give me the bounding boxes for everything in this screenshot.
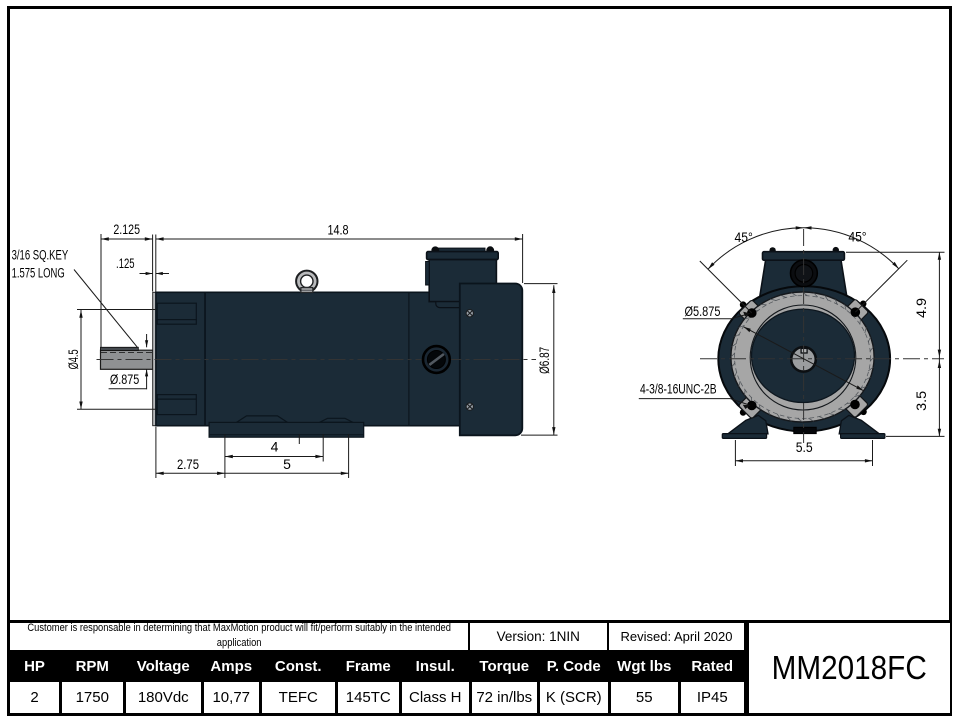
- svg-text:45°: 45°: [848, 228, 866, 244]
- svg-text:14.8: 14.8: [327, 221, 348, 237]
- svg-text:45°: 45°: [735, 229, 753, 245]
- svg-text:4-3/8-16UNC-2B: 4-3/8-16UNC-2B: [640, 381, 717, 397]
- svg-text:3/16 SQ.KEY: 3/16 SQ.KEY: [12, 247, 69, 262]
- svg-text:2.125: 2.125: [113, 221, 140, 237]
- svg-text:4.9: 4.9: [913, 298, 929, 318]
- svg-text:Ø5.875: Ø5.875: [685, 303, 721, 319]
- svg-text:4: 4: [271, 438, 279, 454]
- svg-text:3.5: 3.5: [913, 391, 929, 411]
- svg-text:Ø4.5: Ø4.5: [65, 349, 81, 369]
- svg-text:Ø.875: Ø.875: [110, 371, 140, 387]
- svg-text:1.575 LONG: 1.575 LONG: [12, 266, 65, 281]
- svg-text:Ø6.87: Ø6.87: [536, 347, 552, 374]
- svg-text:2.75: 2.75: [177, 456, 199, 472]
- svg-text:.125: .125: [116, 255, 135, 271]
- svg-text:5: 5: [283, 456, 291, 472]
- svg-text:5.5: 5.5: [796, 439, 813, 455]
